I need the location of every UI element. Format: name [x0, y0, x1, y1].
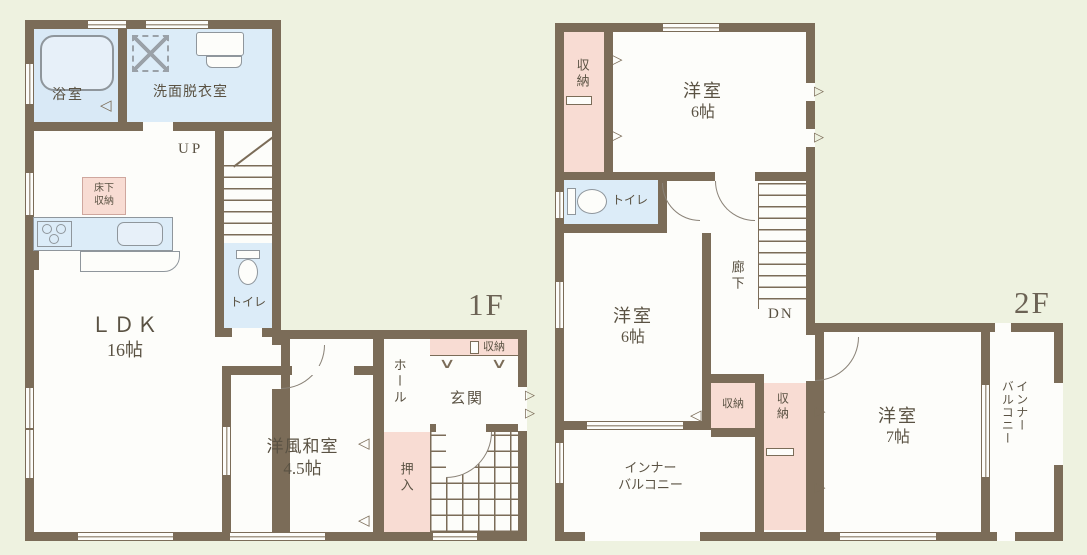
underfloor-storage-label: 床下 収納: [82, 183, 126, 208]
balcony2-top-opening: [995, 323, 1011, 332]
closet-top-label: 収納: [574, 58, 590, 90]
bedroom-right-door-gap: [806, 335, 815, 381]
stairs-left-wall: [215, 131, 224, 337]
balcony2-l2: バルコニー: [1000, 380, 1014, 445]
balcony2-bottom-opening: [997, 532, 1015, 541]
bedroom-top-size: 6帖: [663, 103, 743, 124]
bedroom-right-name: 洋室: [843, 405, 953, 428]
up-label: UP: [178, 140, 203, 158]
washitsu-name: 洋風和室: [235, 436, 370, 458]
closet-a-top-wall: [711, 374, 758, 383]
washroom-label: 洗面脱衣室: [153, 85, 228, 102]
hall-washitsu-wall: [373, 330, 384, 532]
washbasin-bowl-icon: [206, 56, 242, 68]
washbasin-icon: [196, 32, 244, 56]
washitsu-size: 4.5帖: [235, 458, 370, 480]
closet-door-icon: ▷: [814, 404, 826, 419]
balcony1-l2: バルコニー: [593, 477, 708, 494]
stairs-down: [758, 183, 807, 309]
toilet1-bowl-icon: [238, 259, 258, 285]
window: [555, 282, 564, 328]
bedroom-right-size: 7帖: [843, 428, 953, 449]
window: [78, 532, 173, 541]
window: [88, 20, 126, 29]
underfloor-l2: 収納: [94, 196, 114, 207]
fusuma-door-icon: ◁: [358, 513, 370, 528]
closet-b-label: 収納: [775, 392, 789, 422]
shoe-rack-icon: ∨: [490, 357, 507, 371]
balcony2-label: インナー バルコニー: [1000, 380, 1029, 445]
casement-window-icon: ▷: [814, 85, 824, 98]
closet-a-label: 収納: [711, 398, 755, 411]
balcony2-right-opening: [1054, 383, 1063, 465]
bath-washroom-wall: [118, 29, 127, 122]
ldk-size: 16帖: [65, 339, 185, 362]
toilet2-bottom-wall: [564, 224, 667, 233]
balcony1-label: インナー バルコニー: [593, 460, 708, 494]
window: [555, 192, 564, 218]
burner-icon: [56, 224, 66, 234]
toilet1-label: トイレ: [224, 295, 272, 309]
washroom-door-gap: [143, 122, 173, 131]
bedroom-top-label: 洋室 6帖: [663, 80, 743, 124]
underfloor-l1: 床下: [94, 183, 114, 194]
porch-step: [433, 532, 477, 541]
closet-b-left-wall: [755, 374, 764, 532]
bathtub-icon: [40, 35, 114, 91]
washitsu-label: 洋風和室 4.5帖: [235, 436, 370, 480]
window: [555, 443, 564, 483]
kitchen-island-counter: [80, 251, 180, 272]
floor-plan: ◁ 浴室 洗面脱衣室 UP トイレ 床下 収納 ＬＤＫ 16帖 ホール 収納 ∨…: [0, 0, 1087, 555]
shoe-rack-icon: ∨: [438, 357, 455, 371]
closet-b-door: [766, 448, 794, 456]
toilet1-tank-icon: [236, 250, 260, 259]
toilet2-bowl-icon: [577, 189, 607, 214]
window: [840, 532, 936, 541]
closet-door-icon: ▷: [611, 128, 623, 143]
oshiire-label: 押入: [398, 462, 414, 494]
balcony2-slide-door: [981, 385, 990, 477]
ldk-label: ＬＤＫ 16帖: [65, 312, 185, 363]
window: [230, 532, 325, 541]
dn-label: DN: [768, 305, 794, 323]
toilet2-tank-icon: [567, 188, 576, 215]
bedroom-mid-right-wall: [702, 233, 711, 430]
washitsu-door-gap: [292, 366, 354, 375]
kitchen-sink-icon: [117, 222, 163, 246]
bedroom-right-label: 洋室 7帖: [843, 405, 953, 449]
burner-icon: [42, 224, 52, 234]
casement-window-icon: ▷: [814, 131, 824, 144]
entrance-inner-door-gap: [436, 424, 486, 432]
bedroom-top-name: 洋室: [663, 80, 743, 103]
entrance-label: 玄関: [450, 390, 484, 408]
closet-a-bottom-wall: [711, 428, 758, 437]
washitsu-slide-door: [222, 427, 231, 475]
bedroom-mid-label: 洋室 6帖: [588, 305, 678, 349]
balcony2-l1: インナー: [1014, 380, 1028, 445]
closet-door-icon: ▷: [611, 52, 623, 67]
entrance-storage-label: 収納: [483, 341, 505, 354]
floor1-label: 1F: [468, 287, 505, 323]
bedroom-top-door-gap: [715, 172, 755, 181]
corridor-label: 廊下: [729, 260, 745, 292]
bedroom-mid-name: 洋室: [588, 305, 678, 328]
bathroom-door-icon: ◁: [100, 98, 112, 113]
burner-icon: [49, 234, 59, 244]
window: [25, 64, 34, 104]
front-door-icon: ▷: [525, 389, 535, 402]
kitchen-wall-stub: [25, 251, 39, 270]
closet-door-icon: ▷: [814, 480, 826, 495]
entrance-storage-door: [470, 341, 479, 354]
window: [587, 421, 683, 430]
ldk-name: ＬＤＫ: [65, 312, 185, 339]
balcony1-l1: インナー: [593, 460, 708, 477]
toilet1-door-gap: [232, 328, 262, 337]
window: [25, 430, 34, 478]
floor2-label: 2F: [1014, 285, 1051, 321]
window: [146, 20, 208, 29]
front-door-icon: ▷: [525, 407, 535, 420]
window: [25, 388, 34, 428]
bedroom-mid-size: 6帖: [588, 328, 678, 349]
toilet2-label: トイレ: [612, 193, 648, 207]
window: [25, 173, 34, 215]
window: [663, 23, 719, 32]
closet-door-icon: ◁: [690, 408, 702, 423]
bathroom-label: 浴室: [52, 88, 84, 105]
stairs-up: [224, 165, 272, 243]
balcony1-opening: [585, 532, 700, 541]
washing-machine-icon: [132, 35, 169, 72]
hall-label: ホール: [391, 358, 407, 406]
closet-top-door: [566, 96, 592, 105]
